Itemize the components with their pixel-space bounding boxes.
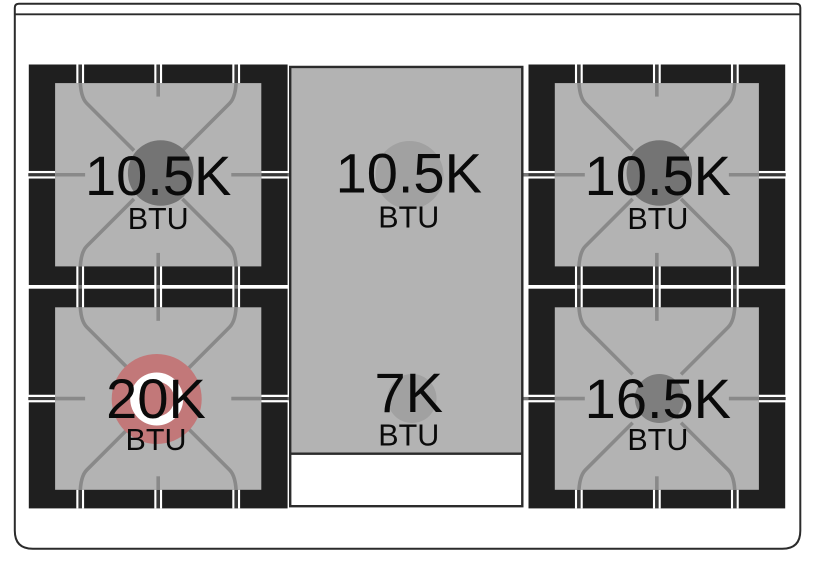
svg-text:10.5K: 10.5K: [585, 144, 731, 207]
svg-text:7K: 7K: [375, 361, 444, 424]
svg-text:BTU: BTU: [378, 419, 439, 453]
svg-text:BTU: BTU: [126, 423, 187, 457]
svg-text:BTU: BTU: [378, 201, 439, 235]
svg-text:10.5K: 10.5K: [336, 142, 482, 205]
svg-text:BTU: BTU: [627, 202, 688, 236]
svg-text:16.5K: 16.5K: [585, 367, 731, 430]
svg-text:10.5K: 10.5K: [85, 144, 231, 207]
svg-text:BTU: BTU: [128, 202, 189, 236]
svg-text:20K: 20K: [106, 367, 206, 430]
svg-text:BTU: BTU: [627, 423, 688, 457]
